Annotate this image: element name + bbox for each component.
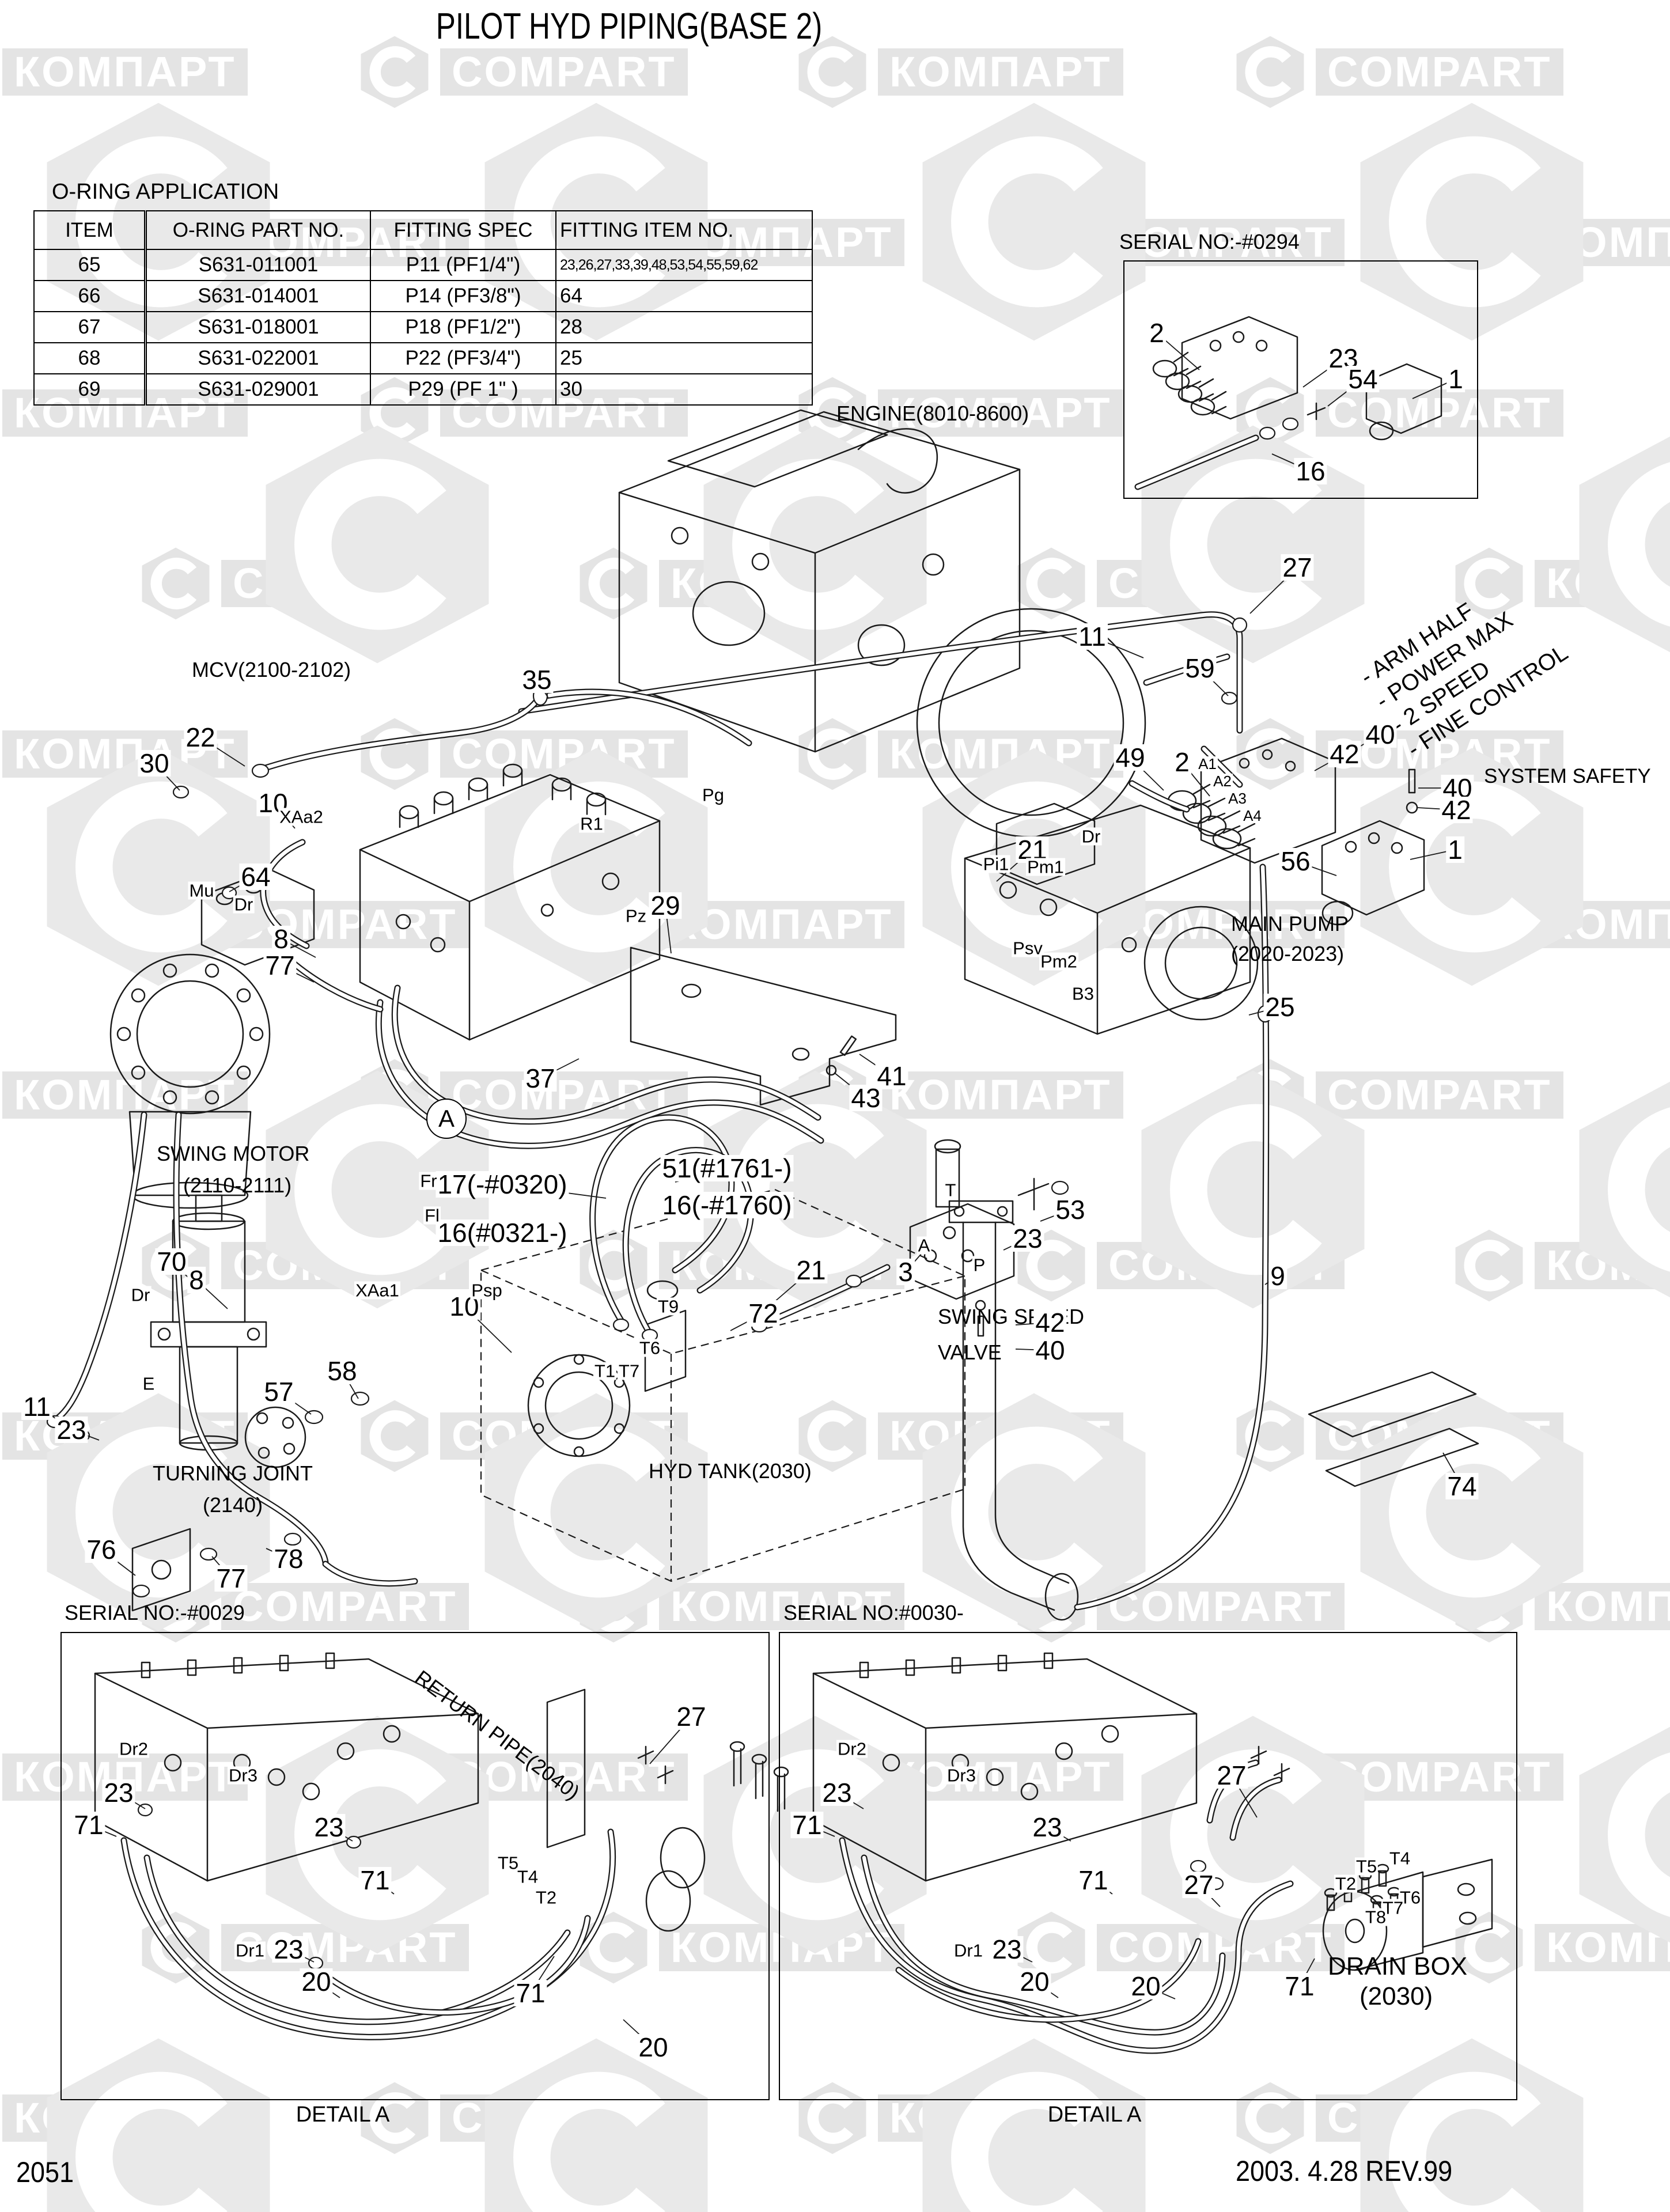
callout-number: 49 [1114,744,1146,771]
port-label: T7 [618,1362,641,1380]
callout-number: 54 [1346,366,1379,392]
oring-cell: S631-011001 [146,249,371,281]
oring-cell: S631-029001 [146,374,371,405]
oring-cell: P18 (PF1/2") [370,312,556,343]
oring-cell: 64 [556,281,812,312]
port-label: Psp [470,1282,503,1300]
callout-number: 23 [820,1779,853,1806]
callout-number: 51(#1761-) [660,1155,793,1181]
port-label: XAa1 [354,1282,400,1300]
page-title: PILOT HYD PIPING(BASE 2) [436,5,823,47]
port-label: Dr1 [234,1942,266,1960]
port-label: T4 [516,1868,539,1886]
port-label: T2 [1334,1875,1357,1893]
port-label: Fr [419,1172,438,1190]
oring-cell: 23,26,27,33,39,48,53,54,55,59,62 [556,249,812,281]
oring-cell: 69 [34,374,146,405]
revision-date: 2003. 4.28 REV.99 [1236,2154,1452,2188]
callout-number: 77 [214,1565,247,1592]
oring-cell: P11 (PF1/4") [370,249,556,281]
callout-number: 42 [1033,1309,1066,1336]
callout-number: 17(-#0320) [436,1171,569,1198]
component-label: (2110-2111) [183,1175,291,1196]
callout-number: 42 [1328,741,1361,767]
callout-number: 40 [1033,1337,1066,1363]
callout-number: 27 [675,1703,707,1730]
callout-number: 23 [55,1416,88,1443]
callout-number: 23 [272,1936,305,1963]
port-label: Mu [188,882,215,900]
component-label: SWING MOTOR [157,1143,309,1164]
callout-number: 57 [262,1378,295,1405]
callout-number: 59 [1183,655,1216,681]
callout-number: 11 [1077,623,1108,650]
callout-number: 20 [1129,1973,1162,1999]
port-label: A [917,1237,931,1255]
oring-cell: 68 [34,343,146,374]
port-label: Dr [1081,828,1102,846]
port-label: T5 [1355,1858,1378,1876]
oring-col-header: FITTING ITEM NO. [556,211,812,249]
callout-number: 42 [1440,797,1472,823]
page-number: 2051 [16,2156,74,2189]
callout-number: 20 [637,2034,669,2061]
callout-number: 3 [896,1259,915,1285]
oring-table-row: 69S631-029001P29 (PF 1" )30 [34,374,812,405]
oring-cell: P22 (PF3/4") [370,343,556,374]
port-label: T1 [593,1362,616,1380]
callout-number: 27 [1215,1762,1248,1789]
callout-number: 53 [1054,1196,1086,1223]
oring-col-header: ITEM [34,211,146,249]
callout-number: 71 [358,1867,391,1893]
callout-number: 71 [72,1812,105,1838]
port-label: Pi1 [982,855,1010,873]
port-label: Dr2 [836,1740,868,1758]
oring-table-body: 65S631-011001P11 (PF1/4")23,26,27,33,39,… [34,249,812,405]
callout-number: 40 [1364,721,1396,748]
callout-number: 77 [263,952,296,979]
callout-number: 8 [272,926,290,952]
oring-cell: 65 [34,249,146,281]
oring-table-head: ITEMO-RING PART NO.FITTING SPECFITTING I… [34,211,812,249]
port-label: XAa2 [278,808,324,826]
port-label: Pm1 [1026,858,1065,876]
port-label: Dr3 [228,1767,259,1785]
callout-number: 23 [990,1936,1023,1963]
port-label: E [142,1375,156,1393]
callout-number: 23 [1031,1814,1063,1840]
callout-number: 23 [1011,1225,1044,1252]
callout-number: 74 [1445,1473,1478,1499]
port-label: A3 [1227,791,1248,806]
component-label: SYSTEM SAFETY [1484,766,1651,786]
callout-number: 2 [1148,320,1166,346]
oring-col-header: FITTING SPEC [370,211,556,249]
oring-table: ITEMO-RING PART NO.FITTING SPECFITTING I… [33,210,813,406]
oring-table-row: 68S631-022001P22 (PF3/4")25 [34,343,812,374]
callout-number: 21 [794,1257,827,1283]
port-label: Pm2 [1039,953,1078,971]
oring-cell: 67 [34,312,146,343]
component-label: (2140) [203,1495,263,1516]
component-label: (2030) [1360,1984,1433,2009]
port-label: Fl [423,1207,441,1225]
port-label: A2 [1212,774,1233,789]
component-label: MCV(2100-2102) [192,660,351,680]
callout-number: 29 [649,892,681,919]
rotated-note-line: RETURN PIPE(2040) [411,1666,584,1804]
callout-number: 78 [272,1546,305,1572]
component-label: DETAIL A [1048,2104,1142,2126]
callout-number: 76 [85,1536,118,1563]
component-label: SERIAL NO:#0030- [783,1603,964,1623]
callout-number: 2 [1173,749,1191,775]
callout-number: 70 [155,1248,188,1275]
callout-number: 71 [1283,1973,1316,1999]
callout-number: 16 [1294,458,1327,484]
callout-number: 20 [300,1968,332,1995]
callout-number: 30 [138,750,171,777]
port-label: Dr [233,896,255,914]
port-label: T6 [638,1339,661,1357]
oring-cell: 66 [34,281,146,312]
oring-table-row: 66S631-014001P14 (PF3/8")64 [34,281,812,312]
callout-number: 37 [524,1065,556,1092]
catalog-page: КОМПАРТCOMPARTКОМПАРТCOMPARTКОМПАРТCOMPA… [0,0,1670,2212]
port-label: A1 [1197,756,1218,771]
port-label: P [972,1256,987,1274]
callout-number: 9 [1268,1263,1287,1289]
callout-number: 71 [790,1812,823,1838]
component-label: HYD TANK(2030) [649,1461,812,1482]
oring-cell: S631-022001 [146,343,371,374]
callout-number: 27 [1182,1872,1215,1898]
port-label: R1 [579,815,604,833]
callout-number: 72 [747,1300,779,1327]
callout-number: 16(-#1760) [660,1192,793,1218]
oring-table-row: 65S631-011001P11 (PF1/4")23,26,27,33,39,… [34,249,812,281]
callout-number: 23 [312,1814,345,1840]
port-label: T [944,1181,957,1199]
callout-number: 58 [325,1358,358,1384]
component-label: DRAIN BOX [1328,1954,1467,1979]
component-label: TURNING JOINT [153,1463,313,1484]
callout-number: 71 [1077,1867,1109,1893]
component-label: ENGINE(8010-8600) [836,403,1029,424]
port-label: Pg [701,786,725,804]
rotated-note: RETURN PIPE(2040) [411,1666,584,1804]
callout-number: 22 [184,724,217,751]
oring-cell: S631-014001 [146,281,371,312]
callout-number: 1 [1446,366,1465,392]
port-label: T8 [1364,1908,1387,1926]
oring-cell: 30 [556,374,812,405]
component-label: VALVE [938,1342,1002,1363]
oring-cell: P14 (PF3/8") [370,281,556,312]
oring-cell: S631-018001 [146,312,371,343]
oring-cell: P29 (PF 1" ) [370,374,556,405]
detail-a-marker: A [426,1099,467,1139]
component-label: SERIAL NO:-#0029 [65,1603,245,1623]
callout-number: 43 [849,1085,882,1111]
callout-number: 8 [187,1267,206,1293]
callout-number: 27 [1281,554,1313,581]
port-label: T9 [657,1298,680,1316]
port-label: T2 [535,1889,558,1907]
callout-number: 35 [520,666,553,693]
oring-cell: 28 [556,312,812,343]
oring-cell: 25 [556,343,812,374]
callout-number: 25 [1263,994,1296,1020]
oring-table-row: 67S631-018001P18 (PF1/2")28 [34,312,812,343]
port-label: T4 [1388,1850,1411,1868]
port-label: B3 [1071,985,1095,1003]
component-label: MAIN PUMP [1231,914,1349,934]
component-label: DETAIL A [296,2104,390,2126]
port-label: Pz [624,907,647,925]
component-label: (2020-2023) [1231,944,1344,964]
callout-number: 20 [1018,1968,1051,1995]
callout-number: 16(#0321-) [436,1219,569,1246]
callout-number: 71 [514,1980,547,2006]
component-label: SERIAL NO:-#0294 [1119,232,1300,252]
callout-number: 56 [1279,848,1312,874]
callout-number: 1 [1446,836,1464,863]
text-layer: PILOT HYD PIPING(BASE 2) O-RING APPLICAT… [0,0,1670,2212]
port-label: Dr3 [946,1767,977,1785]
callout-number: 11 [21,1393,52,1420]
callout-number: 64 [239,863,272,890]
oring-table-title: O-RING APPLICATION [52,180,279,204]
callout-number: 23 [102,1779,135,1806]
oring-col-header: O-RING PART NO. [146,211,371,249]
port-label: Dr2 [118,1740,149,1758]
port-label: Dr [130,1286,152,1304]
port-label: A4 [1242,808,1263,823]
port-label: Dr1 [953,1942,984,1960]
